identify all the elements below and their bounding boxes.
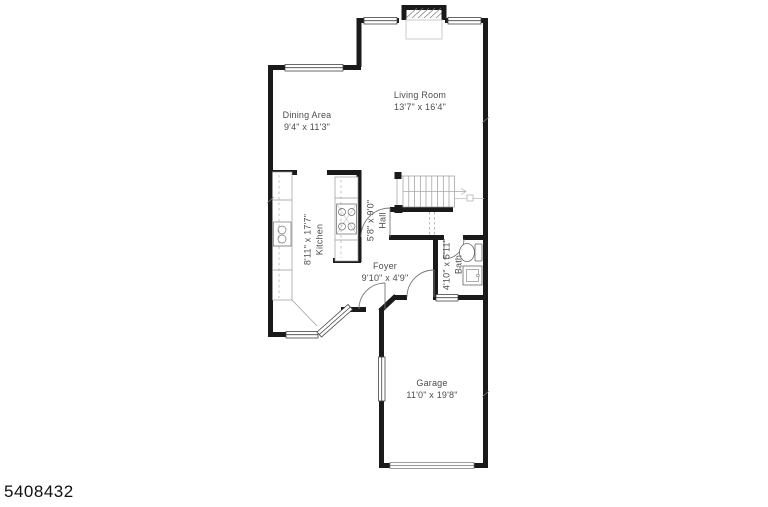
room-name: Kitchen [314,190,326,290]
kitchen-counter [273,172,293,300]
room-name: Foyer [335,261,435,273]
room-label-garage: Garage 11'0" x 19'8" [382,378,482,401]
room-label-dining-area: Dining Area 9'4" x 11'3" [257,110,357,133]
room-dims: 8'11" x 17'7" [303,190,315,290]
room-name: Dining Area [257,110,357,122]
floor-plan: Living Room 13'7" x 16'4" Dining Area 9'… [0,0,768,507]
room-dims: 11'0" x 19'8" [382,390,482,402]
room-dims: 9'4" x 11'3" [257,122,357,134]
room-dims: 5'8" x 9'0" [366,181,378,261]
room-dims: 4'10" x 5'11" [442,215,454,315]
room-label-kitchen: 8'11" x 17'7" Kitchen [303,190,326,290]
room-dims: 13'7" x 16'4" [355,102,485,114]
front-door-icon [359,283,385,309]
staircase-icon [395,172,485,236]
garage-door-icon [390,463,474,469]
room-name: Garage [382,378,482,390]
room-label-bath: 4'10" x 5'11" Bath [442,215,465,315]
room-label-hall: 5'8" x 9'0" Hall [366,181,389,261]
room-label-foyer: Foyer 9'10" x 4'9" [335,261,435,284]
room-dims: 9'10" x 4'9" [335,273,435,285]
counter-edge [292,300,317,326]
fireplace-icon [404,8,444,40]
listing-id-watermark: 5408432 [4,482,74,502]
sink-vanity-icon [463,266,482,285]
room-label-living-room: Living Room 13'7" x 16'4" [355,90,485,113]
room-name: Bath [453,215,465,315]
room-name: Hall [377,181,389,261]
room-name: Living Room [355,90,485,102]
